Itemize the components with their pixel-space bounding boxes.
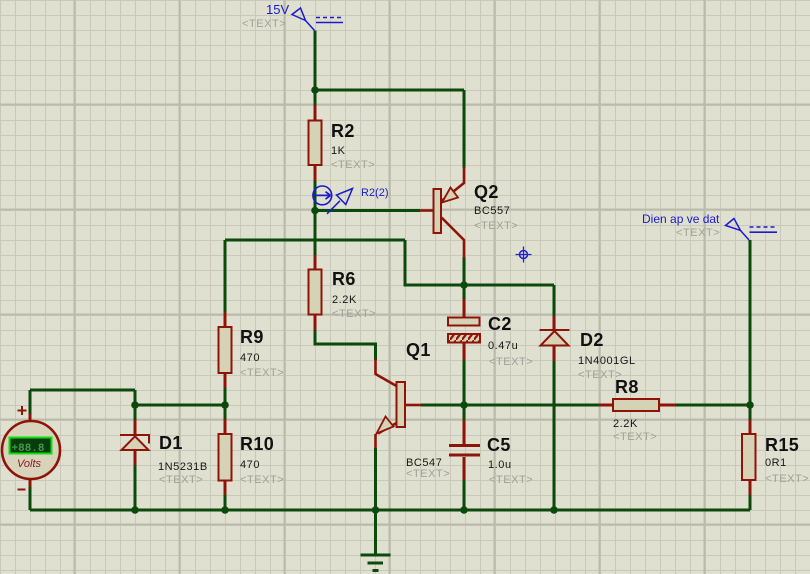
svg-text:0R1: 0R1: [765, 457, 787, 469]
svg-text:0.47u: 0.47u: [488, 340, 518, 352]
svg-text:R2(2): R2(2): [361, 187, 389, 199]
svg-text:2.2K: 2.2K: [332, 294, 357, 306]
svg-text:<TEXT>: <TEXT>: [406, 468, 450, 480]
svg-text:R10: R10: [240, 434, 274, 454]
svg-text:+88.8: +88.8: [12, 443, 45, 455]
svg-text:<TEXT>: <TEXT>: [240, 367, 284, 379]
svg-text:<TEXT>: <TEXT>: [489, 356, 533, 368]
svg-text:15V: 15V: [266, 2, 289, 17]
svg-text:<TEXT>: <TEXT>: [332, 308, 376, 320]
svg-text:Q1: Q1: [406, 340, 431, 360]
svg-text:C2: C2: [488, 314, 512, 334]
svg-text:R2: R2: [331, 121, 355, 141]
svg-text:470: 470: [240, 459, 260, 471]
svg-text:1N5231B: 1N5231B: [158, 461, 208, 473]
svg-text:<TEXT>: <TEXT>: [474, 220, 518, 232]
svg-text:<TEXT>: <TEXT>: [578, 369, 622, 381]
svg-text:R15: R15: [765, 435, 799, 455]
svg-text:BC557: BC557: [474, 205, 510, 217]
svg-text:R6: R6: [332, 269, 356, 289]
svg-text:D1: D1: [159, 433, 183, 453]
svg-text:<TEXT>: <TEXT>: [159, 474, 203, 486]
svg-text:2.2K: 2.2K: [613, 418, 638, 430]
svg-text:<TEXT>: <TEXT>: [765, 473, 809, 485]
svg-text:<TEXT>: <TEXT>: [240, 474, 284, 486]
svg-text:1K: 1K: [331, 145, 346, 157]
svg-text:<TEXT>: <TEXT>: [613, 431, 657, 443]
svg-text:Q2: Q2: [474, 182, 499, 202]
svg-text:1N4001GL: 1N4001GL: [578, 355, 636, 367]
svg-text:<TEXT>: <TEXT>: [676, 227, 720, 239]
svg-text:<TEXT>: <TEXT>: [242, 18, 286, 30]
svg-text:Volts: Volts: [17, 458, 42, 470]
svg-text:<TEXT>: <TEXT>: [331, 159, 375, 171]
svg-text:C5: C5: [487, 435, 511, 455]
svg-text:1.0u: 1.0u: [488, 459, 512, 471]
svg-text:D2: D2: [580, 330, 604, 350]
svg-text:<TEXT>: <TEXT>: [489, 474, 533, 486]
svg-text:470: 470: [240, 352, 260, 364]
svg-text:Dien ap ve dat: Dien ap ve dat: [642, 212, 720, 226]
svg-text:R9: R9: [240, 327, 264, 347]
